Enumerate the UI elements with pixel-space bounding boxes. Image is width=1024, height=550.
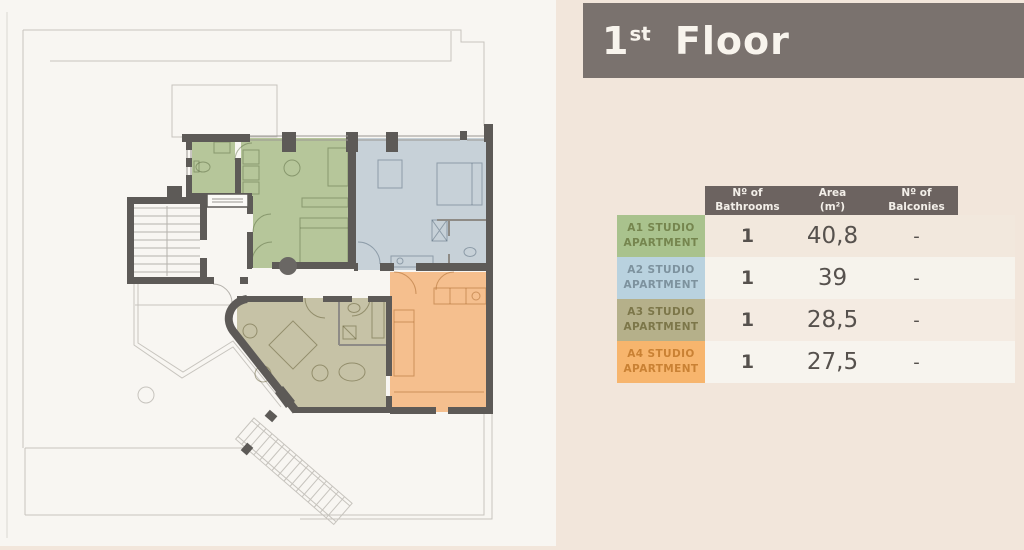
a2-balconies-value: - [875,268,958,289]
a1-area-value: 40,8 [790,223,875,249]
table-row-a1: 1 40,8 - [705,215,1015,257]
elevator [207,194,248,207]
table-row-a4: 1 27,5 - [705,341,1015,383]
page-title: 1st Floor [602,19,790,63]
balcony-outline [172,85,277,137]
row-label-a2: A2 STUDIO APARTMENT [617,257,705,299]
apartment-a3-region [237,298,386,412]
a2-bathrooms-value: 1 [705,267,790,289]
floor-word: Floor [675,19,790,63]
table-row-a2: 1 39 - [705,257,1015,299]
a3-balconies-value: - [875,310,958,331]
table-row-a3: 1 28,5 - [705,299,1015,341]
a3-bathrooms-value: 1 [705,309,790,331]
floor-number: 1 [602,19,629,63]
row-label-a3: A3 STUDIO APARTMENT [617,299,705,341]
apartment-a2-region [354,138,488,270]
row-label-a1: A1 STUDIO APARTMENT [617,215,705,257]
lobby-door-arcs [213,284,232,303]
floor-suffix: st [629,22,650,45]
a2-area-value: 39 [790,265,875,291]
a1-balconies-value: - [875,226,958,247]
floor-plan-area [0,0,556,546]
floor-banner: 1st Floor [583,3,1024,78]
a4-bathrooms-value: 1 [705,351,790,373]
a3-area-value: 28,5 [790,307,875,333]
a1-bathrooms-value: 1 [705,225,790,247]
column-header-balconies: Nº of Balconies [875,187,958,213]
column-header-bathrooms: Nº of Bathrooms [705,187,790,213]
a4-area-value: 27,5 [790,349,875,375]
column-header-area: Area (m²) [790,187,875,213]
floor-plan [0,0,556,546]
interior-stairs [134,206,200,276]
table-header: Nº of Bathrooms Area (m²) Nº of Balconie… [705,186,958,215]
a4-balconies-value: - [875,352,958,373]
row-label-a4: A4 STUDIO APARTMENT [617,341,705,383]
exterior-stairs [236,418,352,524]
